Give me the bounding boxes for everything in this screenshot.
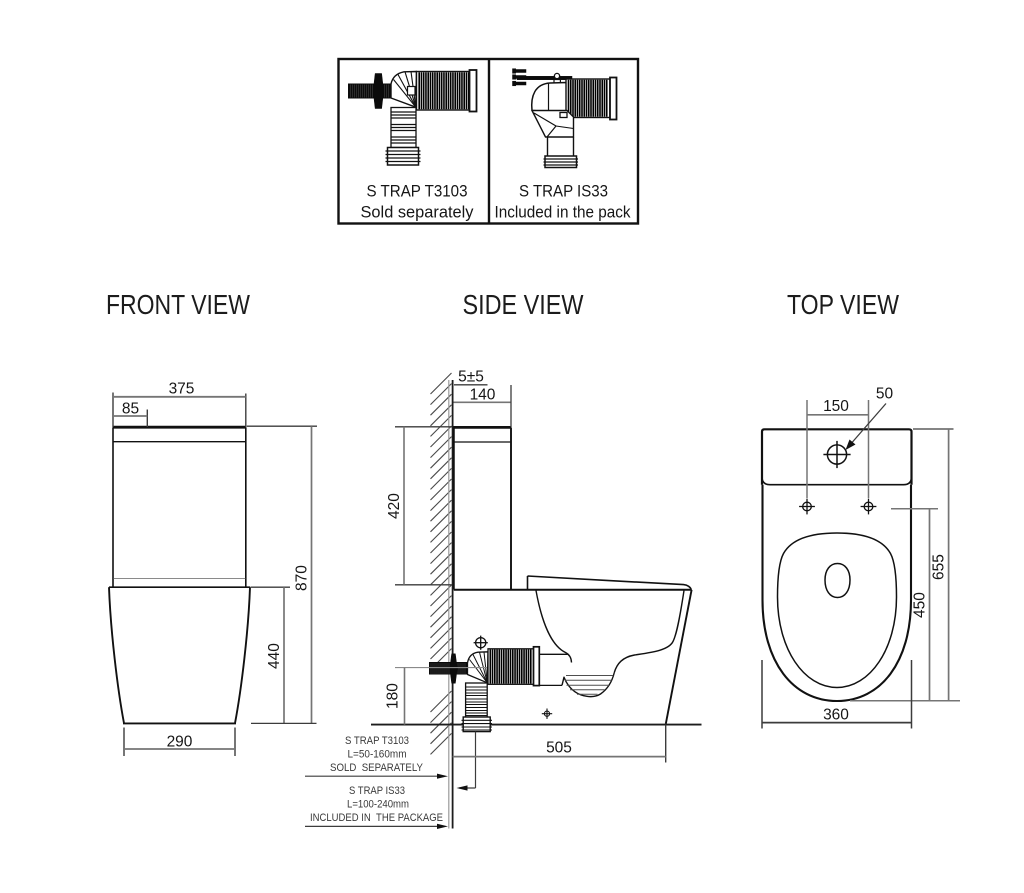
svg-text:150: 150 bbox=[823, 398, 849, 415]
svg-text:SOLD SEPARATELY: SOLD SEPARATELY bbox=[330, 762, 424, 774]
svg-text:Included in the pack: Included in the pack bbox=[495, 203, 631, 222]
svg-text:S TRAP IS33: S TRAP IS33 bbox=[349, 785, 405, 797]
svg-text:140: 140 bbox=[470, 387, 496, 404]
svg-text:870: 870 bbox=[294, 565, 311, 591]
svg-text:L=100-240mm: L=100-240mm bbox=[347, 798, 409, 810]
svg-text:420: 420 bbox=[386, 493, 403, 519]
svg-text:505: 505 bbox=[546, 740, 572, 757]
svg-text:S TRAP T3103: S TRAP T3103 bbox=[367, 182, 468, 201]
svg-text:Sold separately: Sold separately bbox=[361, 203, 474, 222]
svg-text:S TRAP IS33: S TRAP IS33 bbox=[519, 182, 608, 201]
svg-text:50: 50 bbox=[876, 386, 894, 403]
svg-text:180: 180 bbox=[385, 683, 402, 709]
svg-text:FRONT VIEW: FRONT VIEW bbox=[106, 289, 250, 320]
svg-text:360: 360 bbox=[823, 707, 849, 724]
svg-text:TOP VIEW: TOP VIEW bbox=[787, 289, 899, 320]
svg-text:655: 655 bbox=[931, 554, 948, 580]
svg-text:375: 375 bbox=[169, 381, 195, 398]
svg-text:5±5: 5±5 bbox=[458, 369, 484, 386]
svg-text:450: 450 bbox=[912, 592, 929, 618]
svg-text:SIDE VIEW: SIDE VIEW bbox=[463, 289, 584, 320]
svg-text:L=50-160mm: L=50-160mm bbox=[348, 748, 407, 760]
svg-text:INCLUDED IN THE PACKAGE: INCLUDED IN THE PACKAGE bbox=[310, 812, 443, 824]
svg-text:440: 440 bbox=[266, 643, 283, 669]
svg-text:85: 85 bbox=[122, 401, 139, 418]
svg-text:290: 290 bbox=[167, 734, 193, 751]
svg-text:S TRAP T3103: S TRAP T3103 bbox=[345, 735, 409, 747]
